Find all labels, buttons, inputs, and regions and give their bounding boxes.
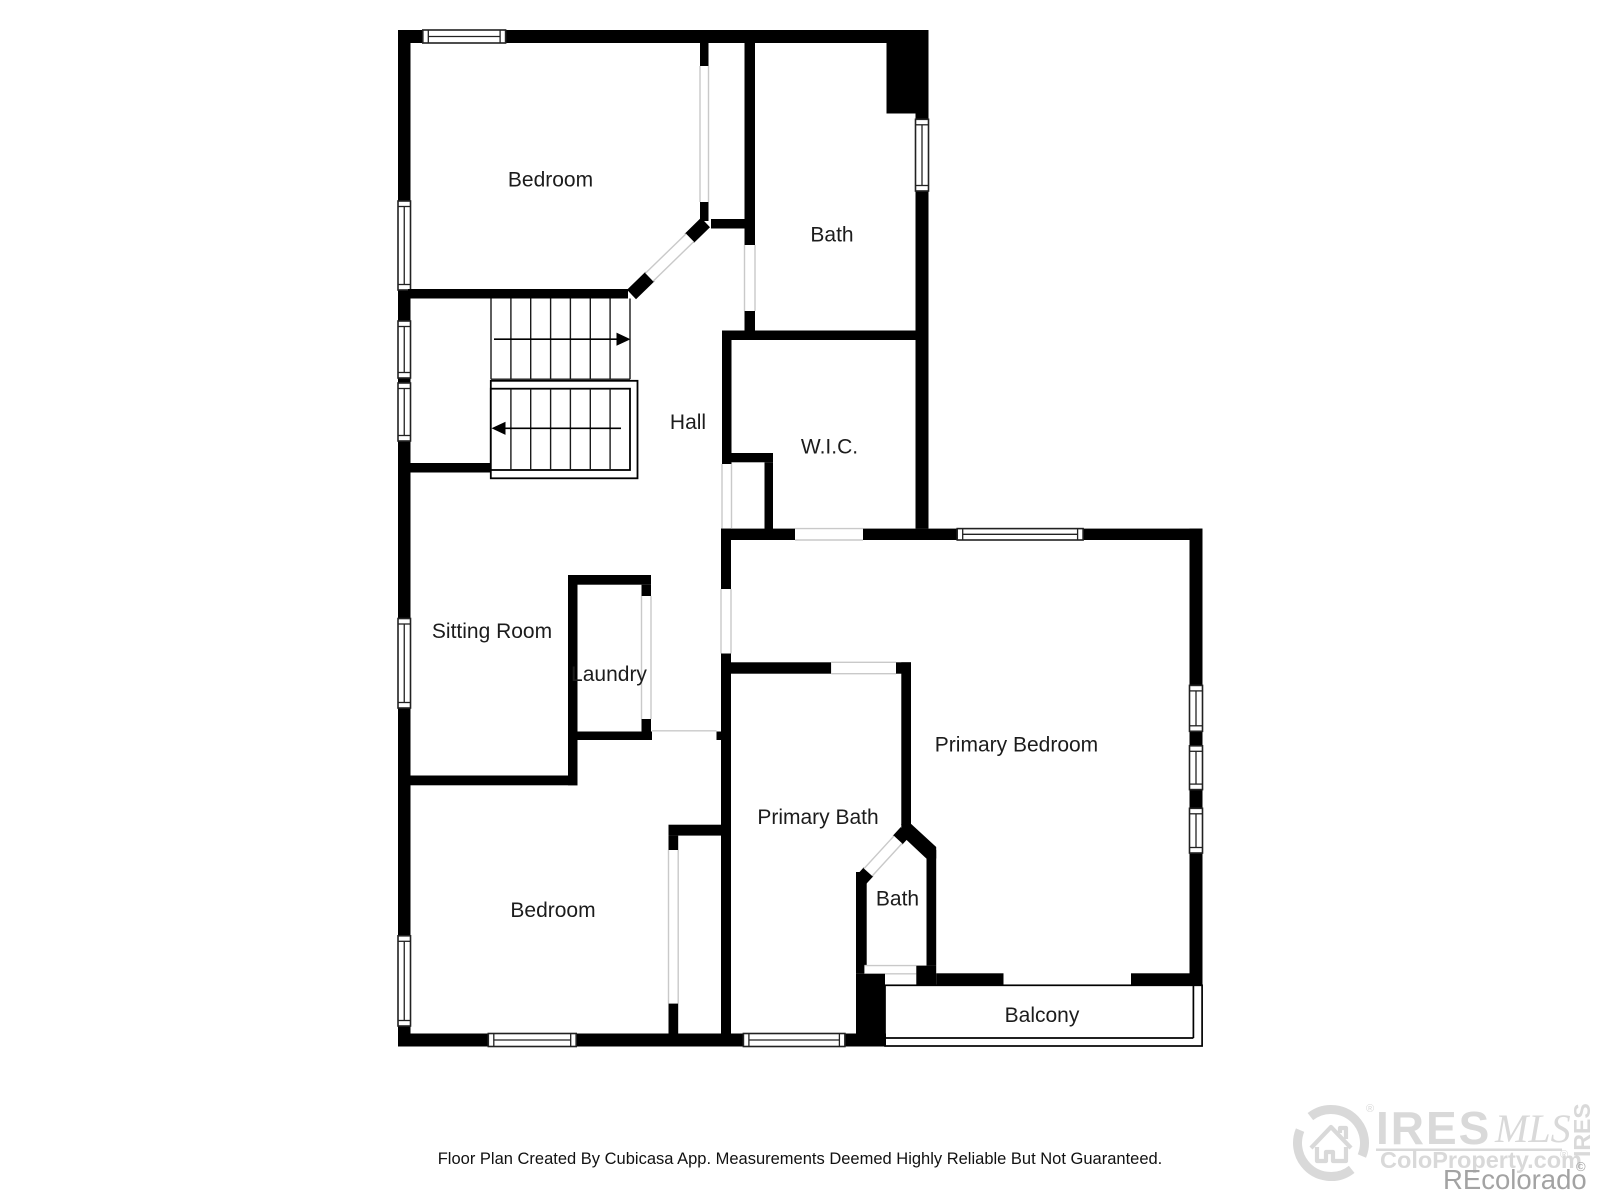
svg-text:Primary Bath: Primary Bath <box>757 806 878 829</box>
svg-text:Balcony: Balcony <box>1005 1004 1080 1027</box>
svg-text:MLS: MLS <box>1494 1106 1571 1151</box>
svg-text:®: ® <box>1366 1103 1374 1115</box>
svg-text:Hall: Hall <box>670 411 706 434</box>
svg-text:W.I.C.: W.I.C. <box>801 435 858 458</box>
svg-text:Sitting Room: Sitting Room <box>432 620 552 643</box>
svg-text:Floor Plan Created By Cubicasa: Floor Plan Created By Cubicasa App. Meas… <box>438 1150 1163 1168</box>
svg-text:Bath: Bath <box>810 223 853 246</box>
svg-text:Laundry: Laundry <box>571 663 647 686</box>
svg-text:Bedroom: Bedroom <box>510 899 595 922</box>
svg-text:Bedroom: Bedroom <box>508 168 593 191</box>
svg-text:Primary Bedroom: Primary Bedroom <box>935 733 1098 756</box>
svg-text:Bath: Bath <box>876 887 919 910</box>
svg-text:REcolorado: REcolorado <box>1443 1164 1587 1195</box>
svg-text:IRES: IRES <box>1569 1103 1595 1157</box>
